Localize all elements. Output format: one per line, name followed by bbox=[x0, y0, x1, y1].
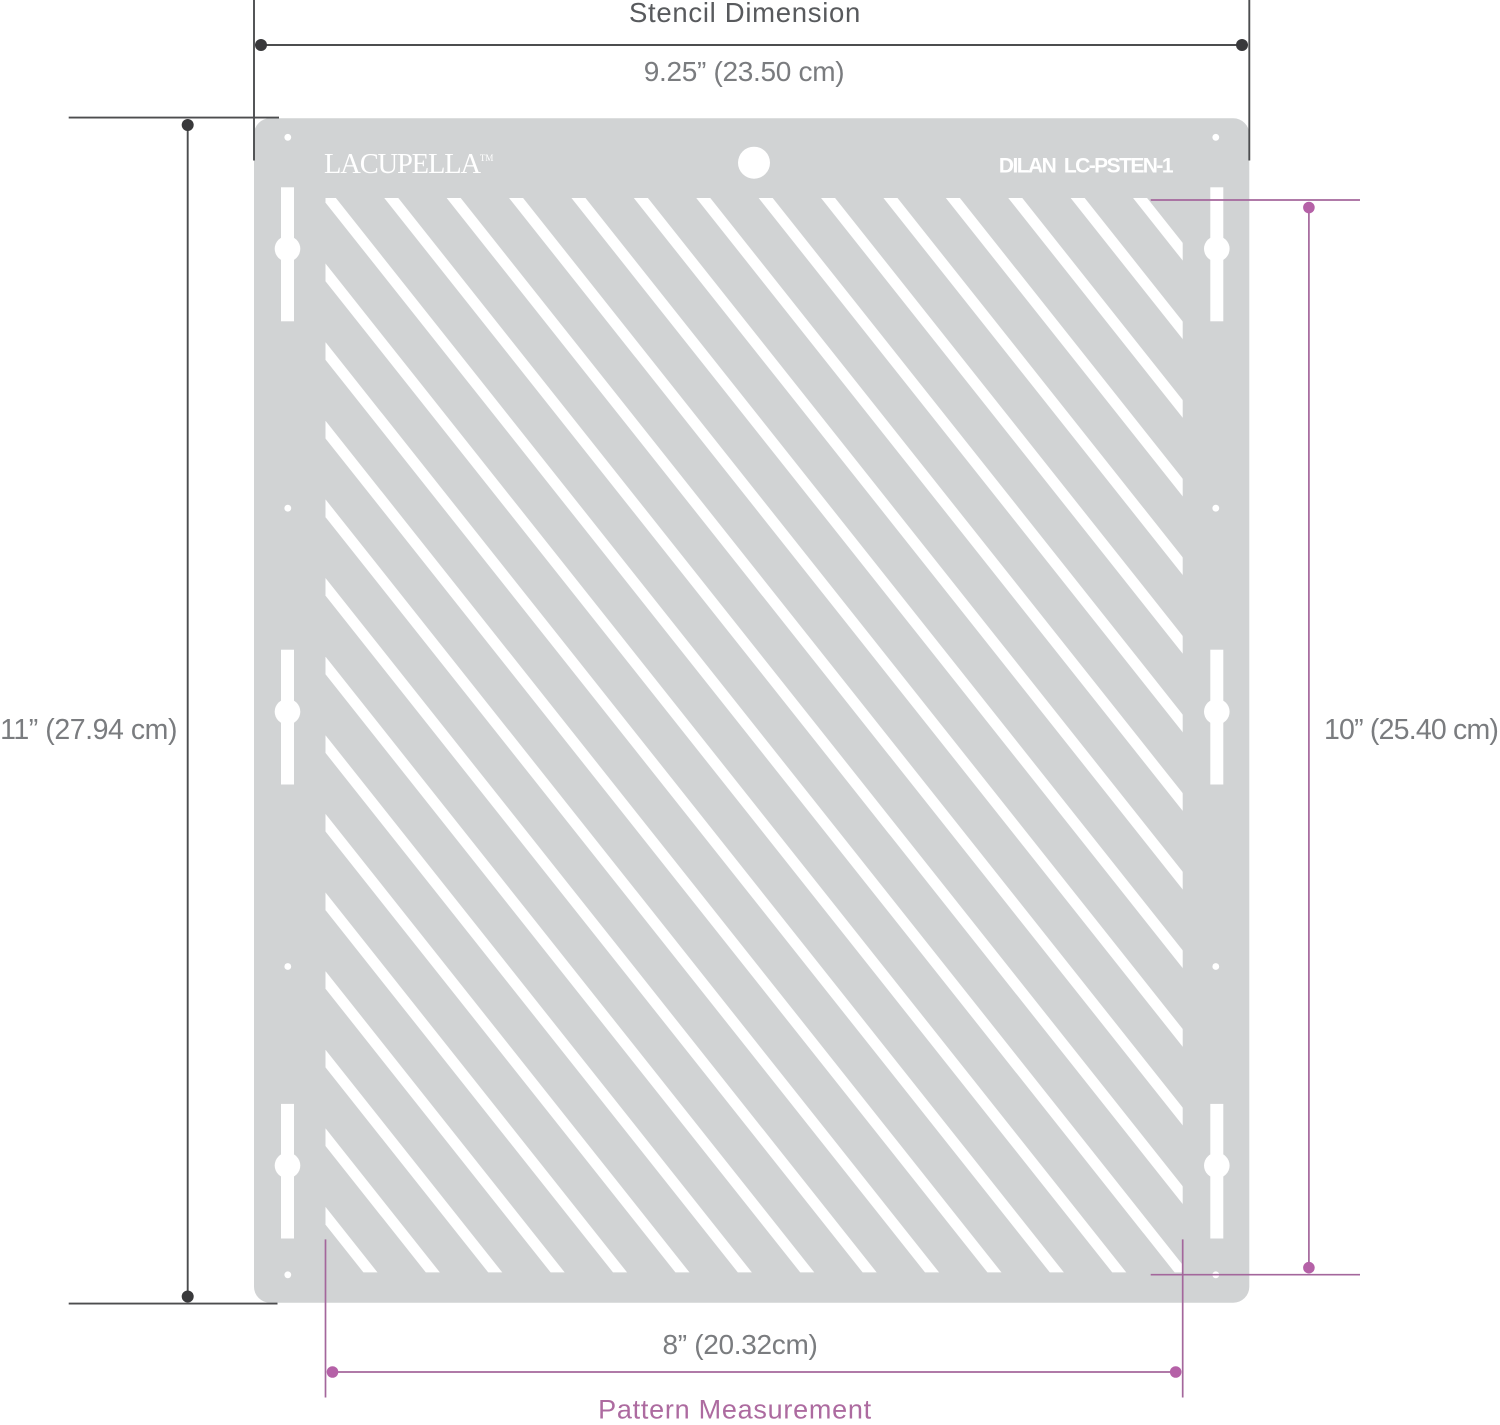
svg-text:11” (27.94 cm): 11” (27.94 cm) bbox=[0, 714, 177, 746]
svg-text:LACUPELLATM: LACUPELLATM bbox=[324, 149, 493, 180]
svg-text:Pattern Measurement: Pattern Measurement bbox=[598, 1395, 872, 1425]
svg-text:10” (25.40 cm): 10” (25.40 cm) bbox=[1324, 714, 1498, 746]
svg-text:DILAN LC-PSTEN-1: DILAN LC-PSTEN-1 bbox=[999, 155, 1174, 178]
svg-text:8” (20.32cm): 8” (20.32cm) bbox=[662, 1329, 817, 1360]
svg-text:9.25” (23.50 cm): 9.25” (23.50 cm) bbox=[644, 56, 845, 87]
svg-text:Stencil Dimension: Stencil Dimension bbox=[629, 0, 861, 28]
